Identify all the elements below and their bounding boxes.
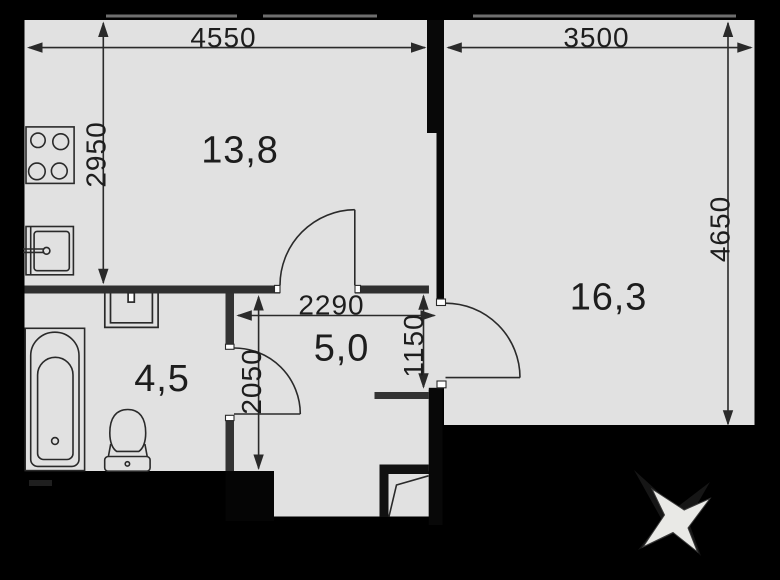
svg-text:2290: 2290 [298,290,364,321]
svg-text:16,3: 16,3 [570,277,648,319]
svg-text:5,0: 5,0 [314,328,370,370]
svg-text:3500: 3500 [563,22,629,53]
svg-text:4550: 4550 [190,22,256,53]
svg-text:2050: 2050 [236,348,267,414]
svg-text:13,8: 13,8 [201,130,279,172]
svg-text:4650: 4650 [705,196,736,262]
svg-text:4,5: 4,5 [134,358,190,400]
svg-text:1150: 1150 [398,313,429,377]
svg-text:2950: 2950 [81,121,112,187]
